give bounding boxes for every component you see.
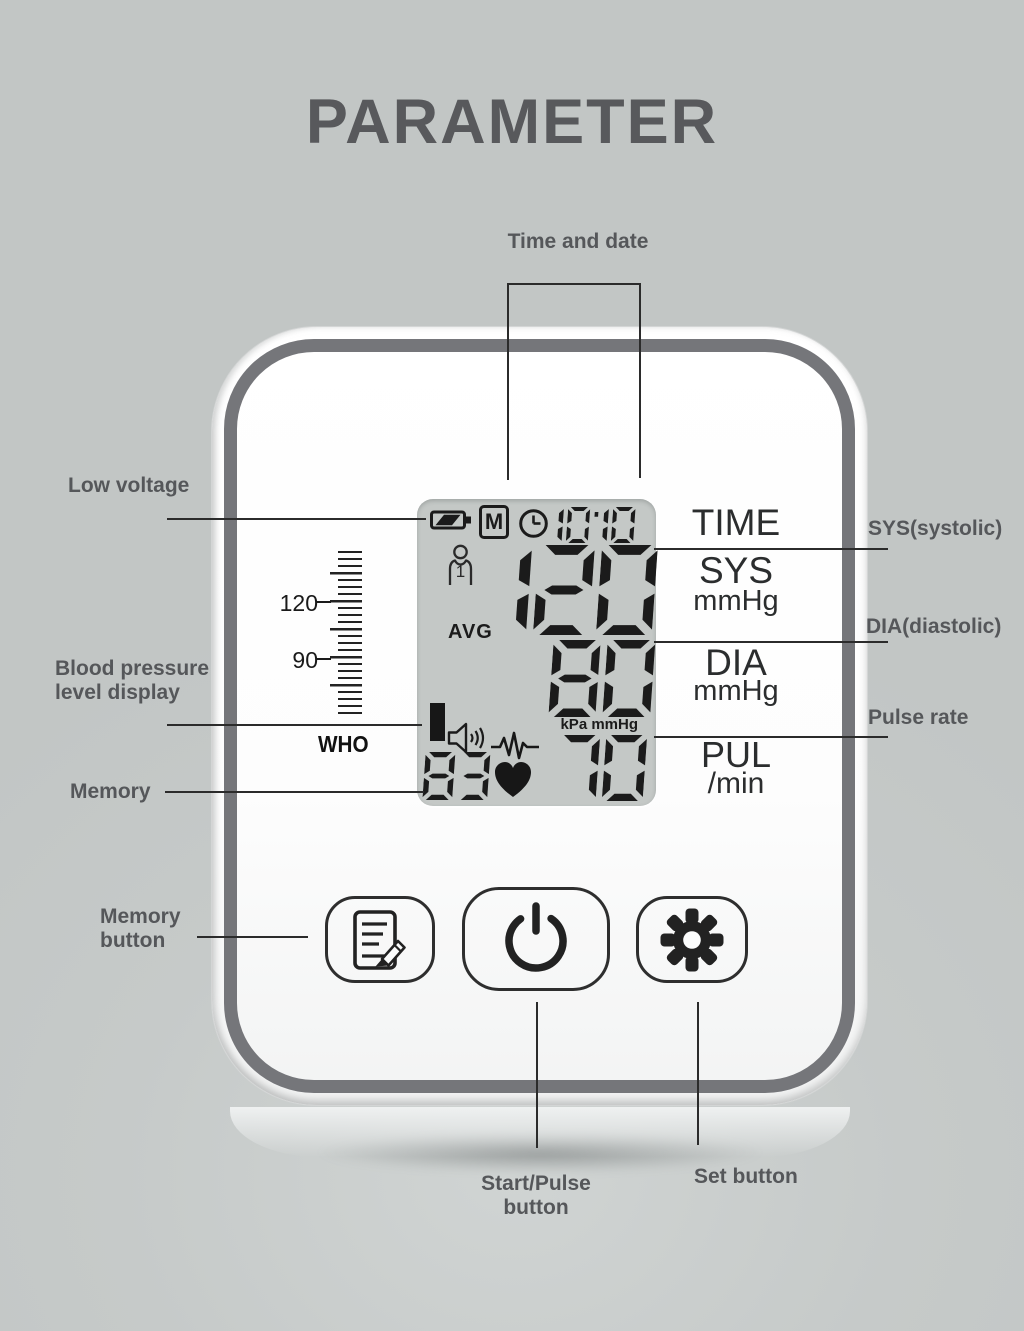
time-date-bracket-top — [507, 283, 641, 285]
user-icon: 1 — [442, 544, 479, 586]
memory-line — [165, 791, 424, 793]
time-date-bracket-right — [639, 283, 641, 478]
who-level-bar — [430, 703, 445, 741]
sys-line — [654, 548, 888, 550]
unit-label: kPa mmHg — [558, 716, 638, 733]
memory-button[interactable] — [325, 896, 435, 983]
scale-dash-90 — [317, 658, 331, 660]
callout-low-voltage: Low voltage — [68, 474, 189, 498]
printed-pul-unit: /min — [680, 769, 792, 799]
memory-flag-icon: M — [479, 505, 509, 539]
callout-start-pulse-line1: Start/Pulse — [456, 1172, 616, 1196]
callout-bp-level-line1: Blood pressure — [55, 657, 209, 681]
callout-start-pulse-button: Start/Pulse button — [456, 1172, 616, 1220]
who-scale-ticks-long — [330, 572, 362, 688]
clock-icon — [518, 508, 549, 539]
memory-count — [422, 752, 490, 800]
callout-set-button: Set button — [694, 1165, 798, 1189]
avg-label: AVG — [448, 621, 493, 644]
callout-time-and-date: Time and date — [498, 230, 658, 254]
printed-sys-unit: mmHg — [680, 587, 792, 616]
memory-button-line — [197, 936, 308, 938]
pulse-line — [654, 736, 888, 738]
systolic-value — [497, 545, 658, 635]
bp-level-line — [167, 724, 422, 726]
start-pulse-button[interactable] — [462, 887, 610, 991]
callout-bp-level-line2: level display — [55, 681, 209, 705]
low-battery-icon — [430, 508, 472, 532]
callout-memory-button: Memory button — [100, 905, 181, 953]
printed-dia-unit: mmHg — [680, 677, 792, 706]
heart-icon — [493, 761, 533, 799]
power-icon — [497, 899, 575, 979]
low-voltage-line — [167, 518, 426, 520]
callout-memory: Memory — [70, 780, 151, 804]
user-number: 1 — [456, 562, 465, 581]
set-button-line — [697, 1002, 699, 1145]
diastolic-value — [497, 640, 655, 717]
callout-sys-systolic: SYS(systolic) — [868, 517, 1002, 541]
callout-memory-button-line2: button — [100, 929, 181, 953]
page-title: PARAMETER — [0, 86, 1024, 158]
dia-line — [654, 641, 888, 643]
callout-bp-level: Blood pressure level display — [55, 657, 209, 705]
scale-dash-120 — [317, 601, 331, 603]
callout-start-pulse-line2: button — [456, 1196, 616, 1220]
who-label: WHO — [318, 731, 369, 758]
start-button-line — [536, 1002, 538, 1148]
device-reflection — [230, 1107, 850, 1157]
printed-time-label: TIME — [680, 504, 792, 541]
time-date-bracket-left — [507, 283, 509, 480]
scale-label-120: 120 — [258, 590, 318, 617]
speaker-icon — [447, 721, 491, 755]
scale-label-90: 90 — [258, 647, 318, 674]
document-pencil-icon — [349, 908, 411, 972]
gear-icon — [659, 907, 725, 973]
ecg-waveform-icon — [491, 731, 541, 761]
set-button[interactable] — [636, 896, 748, 983]
printed-sys-label: SYS — [680, 552, 792, 589]
callout-pulse-rate: Pulse rate — [868, 706, 968, 730]
time-display — [556, 507, 636, 543]
callout-memory-button-line1: Memory — [100, 905, 181, 929]
callout-dia-diastolic: DIA(diastolic) — [866, 615, 1001, 639]
